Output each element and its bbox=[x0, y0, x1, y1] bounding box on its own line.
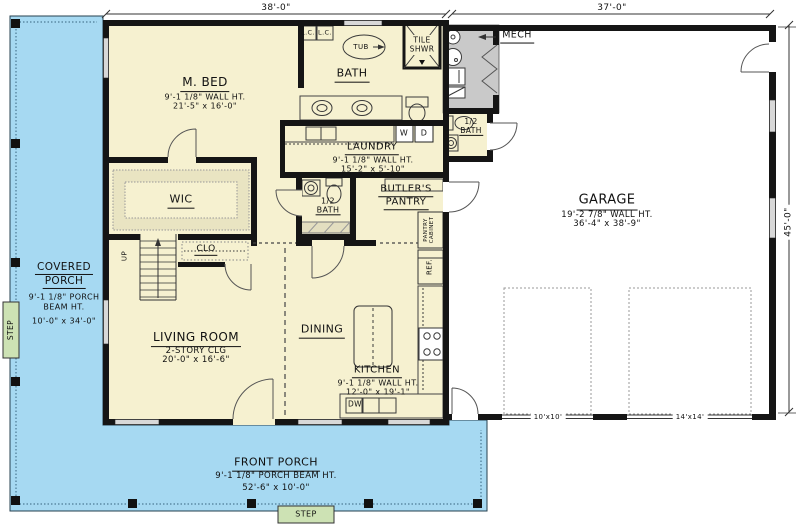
dw-label: DW bbox=[348, 401, 362, 410]
living-size: 20'-0" x 16'-6" bbox=[162, 356, 230, 366]
room-front-porch: FRONT PORCH bbox=[232, 457, 320, 472]
dryer-label: D bbox=[421, 128, 428, 137]
m-bed-ht: 9'-1 1/8" WALL HT. bbox=[164, 92, 245, 101]
room-garage: GARAGE bbox=[577, 194, 638, 211]
covered-porch-ht1: 9'-1 1/8" PORCH bbox=[29, 292, 100, 301]
washer-label: W bbox=[400, 128, 408, 137]
room-half-bath-center: 1/2BATH bbox=[316, 196, 341, 215]
room-m-bed: M. BED bbox=[180, 76, 229, 92]
room-kitchen: KITCHEN bbox=[352, 364, 402, 378]
room-butlers-2: PANTRY bbox=[384, 196, 429, 210]
tub-label: TUB bbox=[353, 43, 368, 51]
kitchen-ht: 9'-1 1/8" WALL HT. bbox=[337, 378, 418, 387]
room-covered-porch-1: COVERED bbox=[35, 261, 93, 275]
room-laundry: LAUNDRY bbox=[345, 141, 399, 155]
dim-right: 45'-0" bbox=[784, 204, 793, 239]
room-covered-porch-2: PORCH bbox=[43, 275, 86, 289]
dim-top-right: 37'-0" bbox=[594, 3, 629, 13]
covered-porch-size: 10'-0" x 34'-0" bbox=[32, 316, 96, 325]
garage-door-small-label: 10'x10' bbox=[531, 413, 566, 421]
step-left-label: STEP bbox=[7, 320, 15, 340]
room-butlers-1: BUTLER'S bbox=[378, 183, 433, 197]
laundry-size: 15'-2" x 5'-10" bbox=[341, 164, 405, 173]
pantry-cabinet-label: PANTRYCABINET bbox=[424, 217, 436, 244]
ref-label: REF. bbox=[426, 259, 433, 275]
tile-shower-label: TILESHWR bbox=[410, 36, 435, 53]
floorplan-linework bbox=[0, 0, 800, 530]
covered-porch-ht2: BEAM HT. bbox=[43, 302, 84, 311]
room-living: LIVING ROOM bbox=[151, 331, 241, 347]
front-porch-size: 52'-6" x 10'-0" bbox=[242, 484, 310, 494]
room-clo: CLO bbox=[194, 244, 217, 256]
linen-closet-right-label: L.C. bbox=[318, 29, 332, 36]
vanity-icon bbox=[300, 96, 402, 120]
kitchen-island-icon bbox=[354, 306, 392, 367]
room-dining: DINING bbox=[299, 324, 345, 339]
room-wic: WIC bbox=[167, 194, 194, 209]
dim-top-left: 38'-0" bbox=[258, 3, 293, 13]
room-half-bath-garage: 1/2BATH bbox=[459, 118, 483, 136]
linen-closet-left-label: L.C. bbox=[301, 29, 315, 36]
room-mech: MECH bbox=[500, 31, 534, 44]
room-bath: BATH bbox=[335, 68, 370, 83]
stairs-up-label: UP bbox=[121, 251, 128, 261]
step-bottom-label: STEP bbox=[295, 509, 316, 518]
floor-plan: 38'-0" 37'-0" 45'-0" M. BED 9'-1 1/8" WA… bbox=[0, 0, 800, 530]
kitchen-size: 12'-0" x 19'-1" bbox=[346, 387, 410, 396]
garage-door-large-label: 14'x14' bbox=[673, 413, 708, 421]
garage-size: 36'-4" x 38'-9" bbox=[573, 220, 641, 230]
front-porch-ht: 9'-1 1/8" PORCH BEAM HT. bbox=[215, 472, 336, 482]
m-bed-size: 21'-5" x 16'-0" bbox=[173, 101, 237, 110]
laundry-ht: 9'-1 1/8" WALL HT. bbox=[332, 155, 413, 164]
